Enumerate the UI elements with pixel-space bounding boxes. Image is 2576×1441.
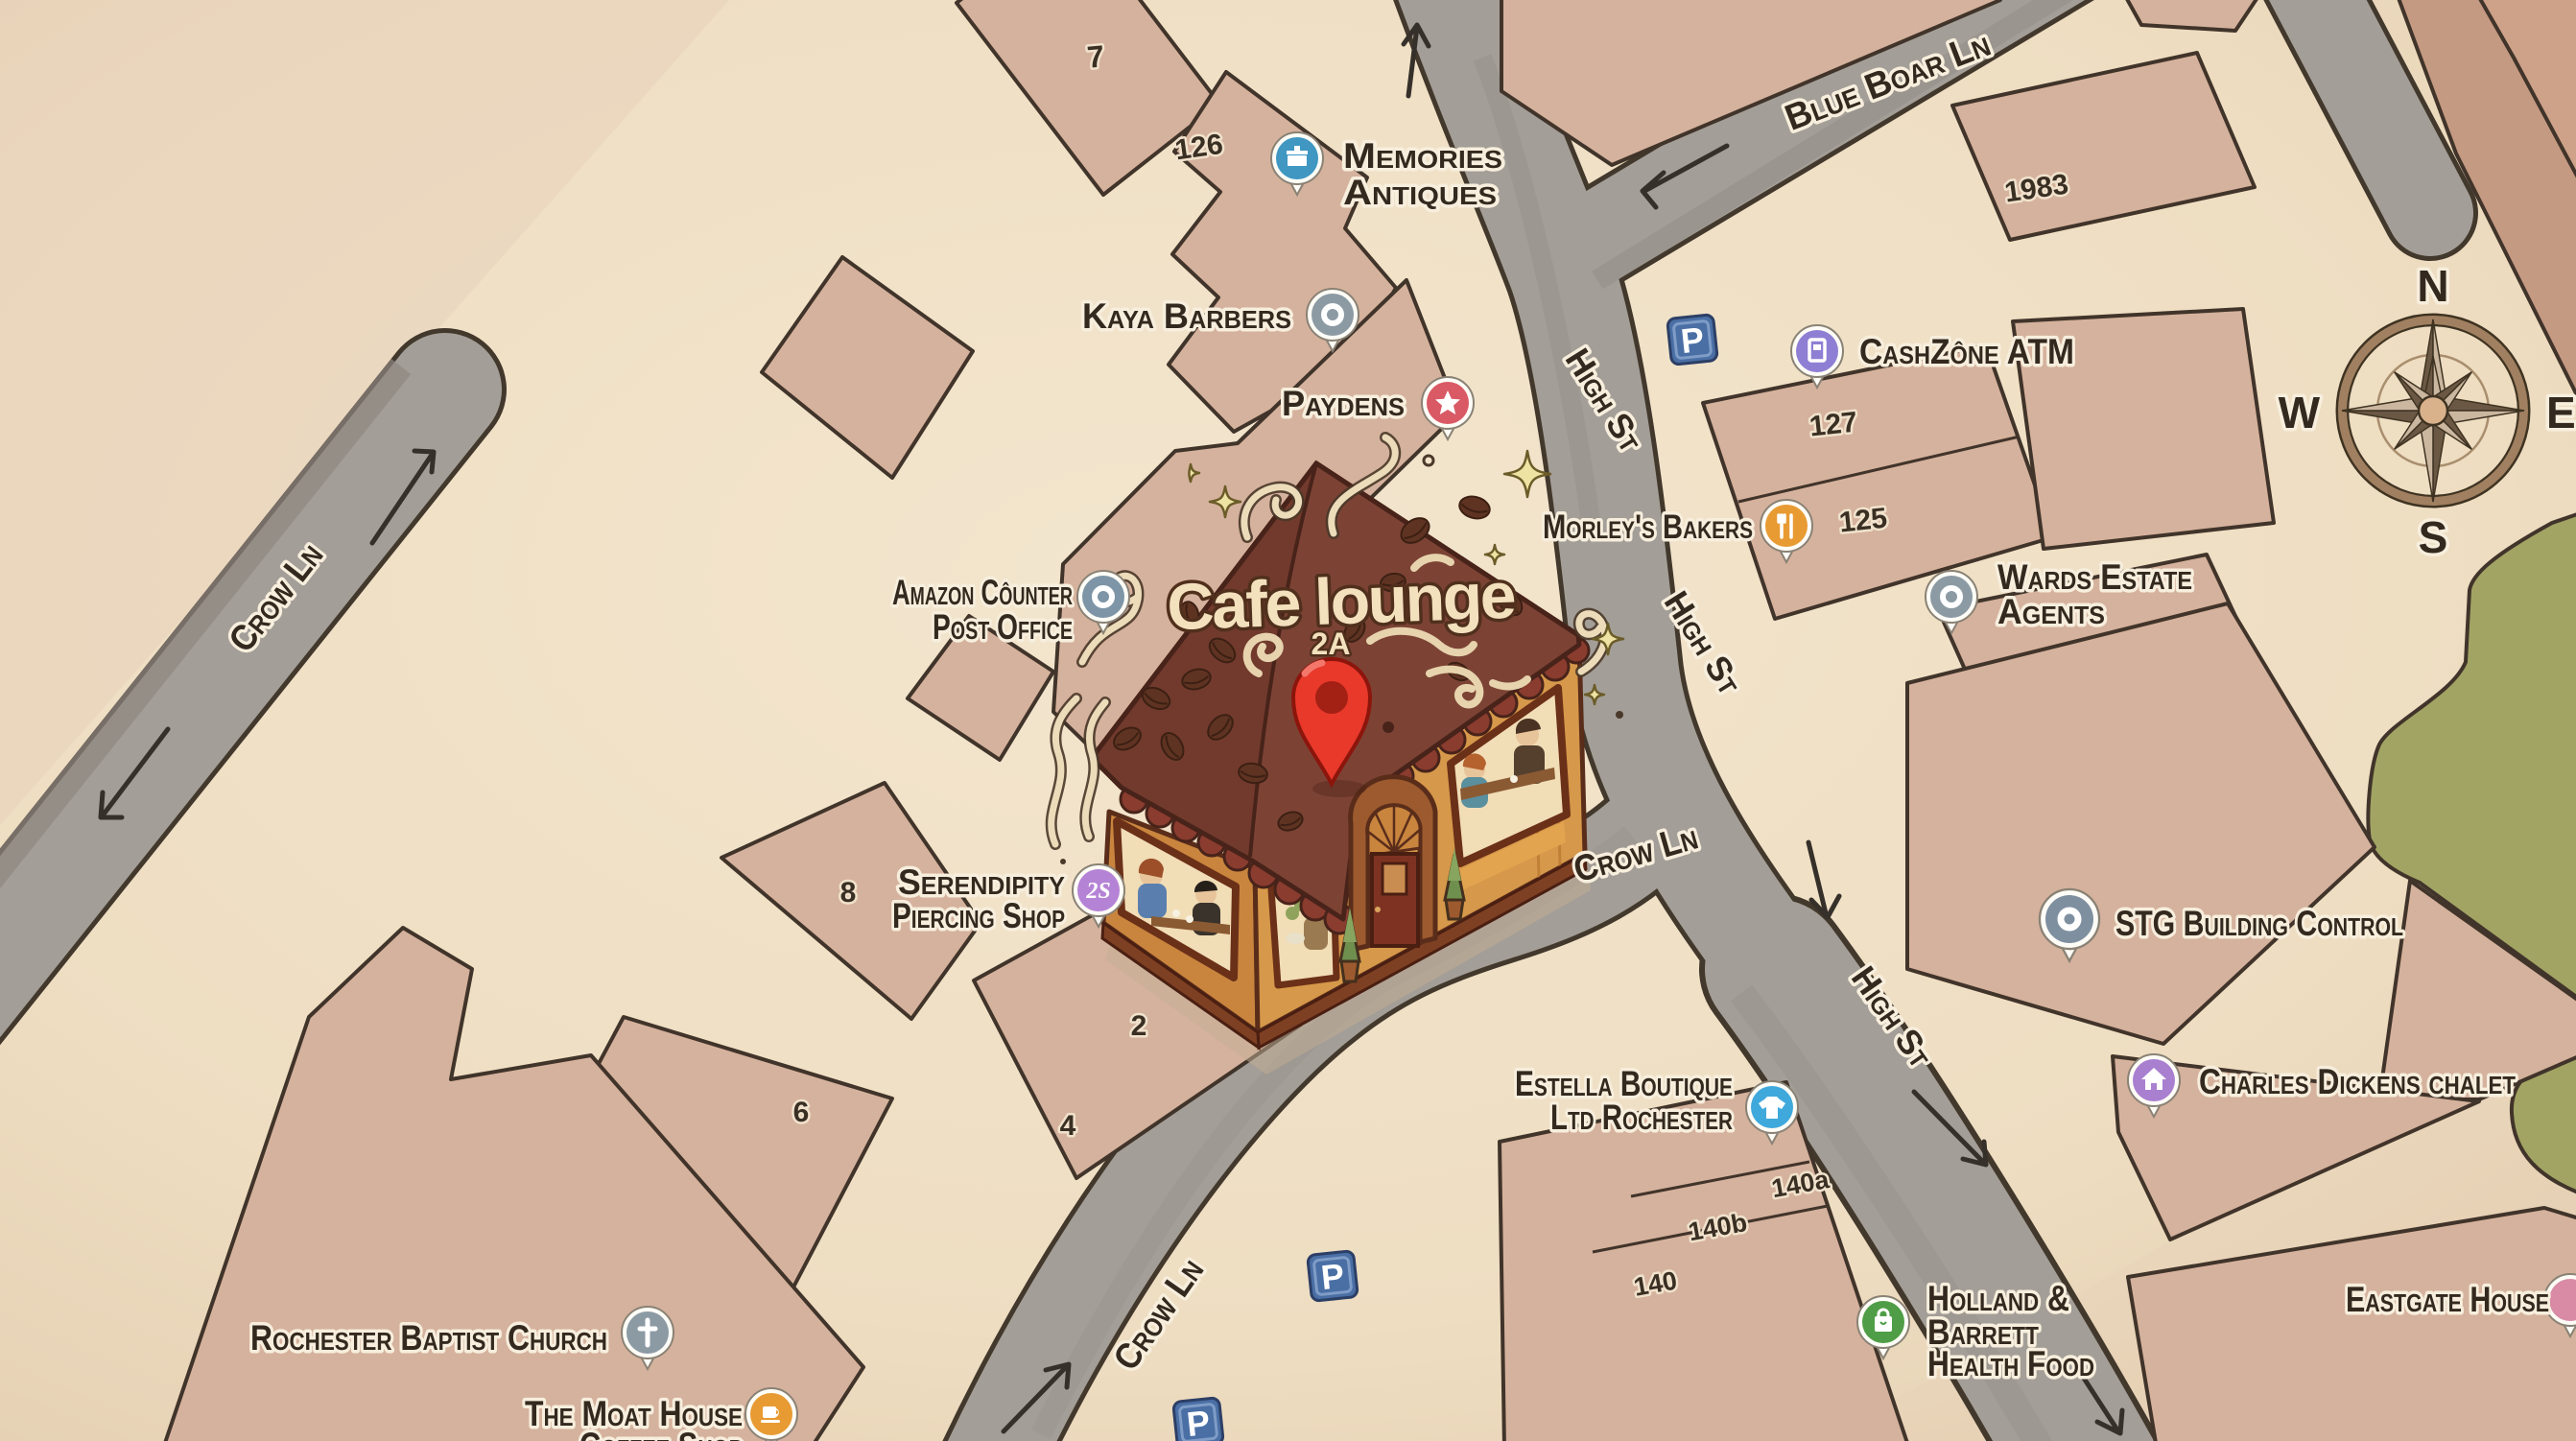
svg-text:Piercing Shop: Piercing Shop — [892, 896, 1065, 935]
svg-text:Eastgate House: Eastgate House — [2346, 1280, 2549, 1319]
svg-text:126: 126 — [1173, 129, 1225, 167]
svg-text:P: P — [1679, 319, 1706, 361]
svg-text:Wards Estate: Wards Estate — [1997, 557, 2192, 597]
svg-text:Agents: Agents — [1997, 592, 2105, 631]
svg-text:P: P — [1319, 1256, 1346, 1297]
svg-text:N: N — [2417, 261, 2448, 311]
svg-text:S: S — [2419, 512, 2448, 562]
svg-text:6: 6 — [793, 1097, 810, 1128]
svg-text:CashZône ATM: CashZône ATM — [1859, 332, 2074, 371]
svg-text:2: 2 — [1131, 1010, 1147, 1042]
svg-text:Memories: Memories — [1343, 136, 1502, 176]
svg-text:Rochester Baptist Church: Rochester Baptist Church — [250, 1318, 607, 1358]
svg-text:2A: 2A — [1312, 626, 1351, 661]
svg-text:Charles Dickens chalet: Charles Dickens chalet — [2199, 1062, 2516, 1101]
svg-text:W: W — [2279, 388, 2321, 437]
svg-text:2S: 2S — [1085, 879, 1110, 904]
svg-text:E: E — [2546, 388, 2576, 437]
svg-text:Post Office: Post Office — [933, 607, 1073, 647]
svg-text:Paydens: Paydens — [1282, 384, 1405, 423]
svg-text:Health Food: Health Food — [1927, 1344, 2094, 1383]
svg-text:Coffee Shop: Coffee Shop — [579, 1426, 743, 1441]
svg-text:Kaya Barbers: Kaya Barbers — [1082, 296, 1291, 336]
svg-text:Amazon Côunter: Amazon Côunter — [892, 573, 1073, 612]
svg-text:4: 4 — [1060, 1110, 1076, 1142]
svg-text:127: 127 — [1808, 407, 1858, 443]
svg-text:7: 7 — [1086, 38, 1106, 74]
svg-text:Morley's Bakers: Morley's Bakers — [1543, 508, 1753, 546]
svg-text:Antiques: Antiques — [1343, 173, 1497, 212]
svg-text:8: 8 — [840, 877, 857, 909]
svg-text:125: 125 — [1837, 503, 1888, 539]
svg-text:P: P — [1185, 1403, 1212, 1441]
svg-text:Ltd Rochester: Ltd Rochester — [1550, 1098, 1733, 1137]
svg-text:STG Building Control: STG Building Control — [2115, 904, 2403, 943]
